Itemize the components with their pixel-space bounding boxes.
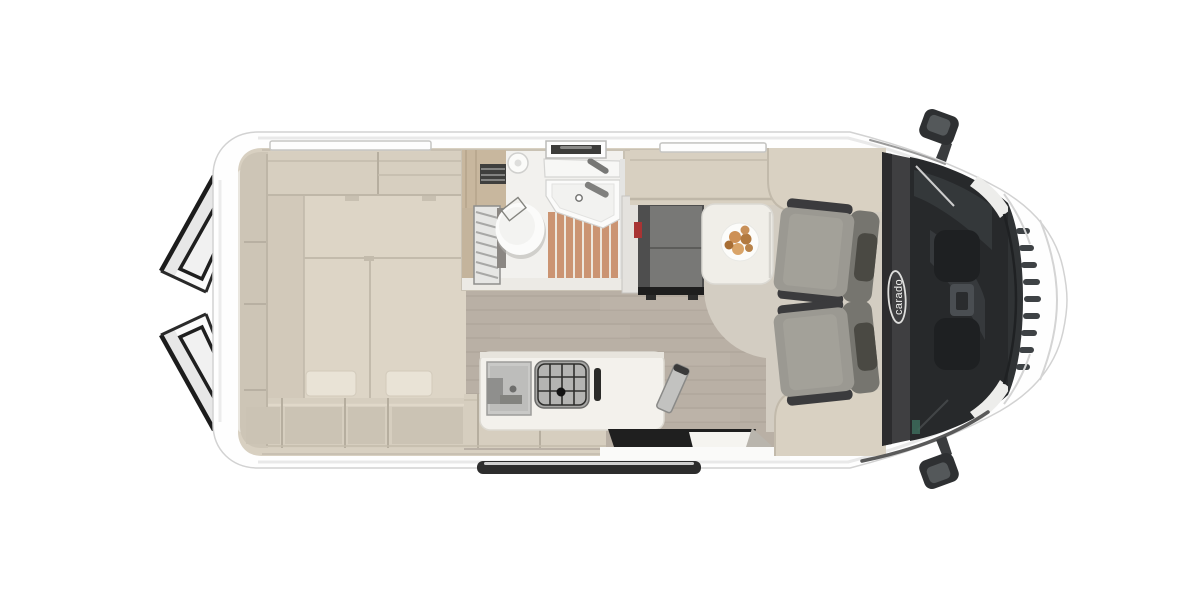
svg-text:carado: carado: [893, 279, 905, 315]
